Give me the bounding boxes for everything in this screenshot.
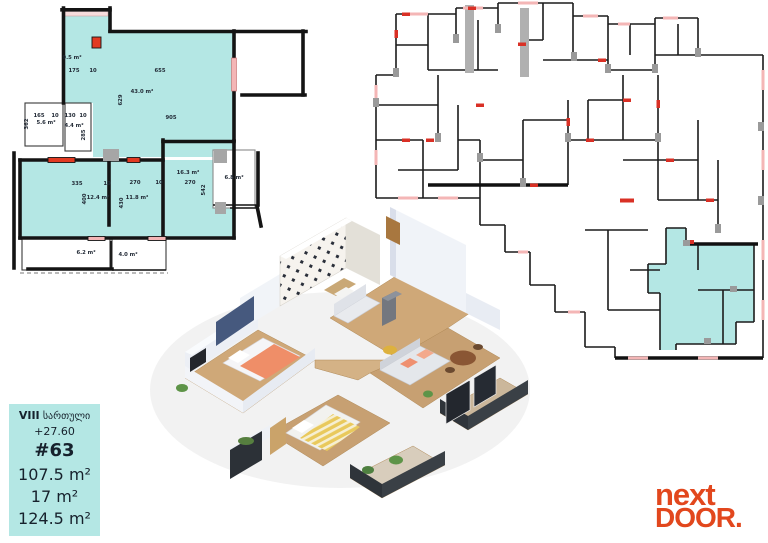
dimension-label: 5.6 m² (36, 119, 56, 126)
dimension-label: 362 (24, 118, 30, 129)
unit-info-box: VIII სართული +27.60 #63 107.5 m² 17 m² 1… (9, 404, 100, 536)
plant (176, 384, 188, 392)
plant (423, 391, 433, 398)
dimension-label: 130 (64, 113, 75, 119)
dimension-label: 4.4 m² (64, 122, 84, 129)
dimension-label: 10 (51, 113, 59, 119)
area-balcony: 17 m² (31, 488, 78, 506)
dimension-label: 10 (103, 181, 111, 187)
dimension-label: 6.2 m² (76, 249, 96, 256)
dimension-label: 9.5 m² (62, 54, 82, 61)
dimension-label: 285 (81, 129, 87, 140)
window-marker (232, 58, 237, 91)
dimension-label: 175 (68, 68, 79, 74)
area-apartment: 107.5 m² (18, 466, 91, 484)
building-highlight-unit (648, 228, 754, 350)
apartment-3d-render (128, 198, 532, 516)
dimension-label: 12.4 m² (87, 194, 110, 201)
dimension-label: 16.3 m² (177, 169, 200, 176)
dimension-label: 270 (184, 180, 195, 186)
dimension-label: 10 (79, 113, 87, 119)
area-total: 124.5 m² (18, 510, 91, 528)
floor-label: VIII სართული (19, 410, 90, 422)
armchair (383, 346, 397, 355)
dimension-label: 655 (154, 68, 165, 74)
dimension-label: 43.0 m² (131, 88, 154, 95)
dimension-label: 335 (71, 181, 82, 187)
dimension-label: 905 (165, 115, 176, 121)
elevation-label: +27.60 (34, 426, 75, 437)
logo-line-door: DOOR. (655, 507, 765, 530)
dimension-label: 165 (33, 113, 44, 119)
dining-table (450, 351, 476, 366)
core-slabs (465, 5, 529, 77)
dimension-label: 270 (129, 180, 140, 186)
nextdoor-logo: next DOOR. (655, 482, 765, 530)
dimension-label: 542 (201, 184, 207, 195)
dimension-label: 629 (118, 94, 124, 105)
unit-number: #63 (34, 441, 74, 461)
floorplan-sheet: { "colors": { "highlight": "#b4e7e4", "w… (0, 0, 768, 543)
dimension-label: 10 (155, 180, 163, 186)
dimension-label: 10 (89, 68, 97, 74)
dimension-label: 430 (119, 197, 125, 208)
dimension-label: 6.8 m² (224, 174, 244, 181)
